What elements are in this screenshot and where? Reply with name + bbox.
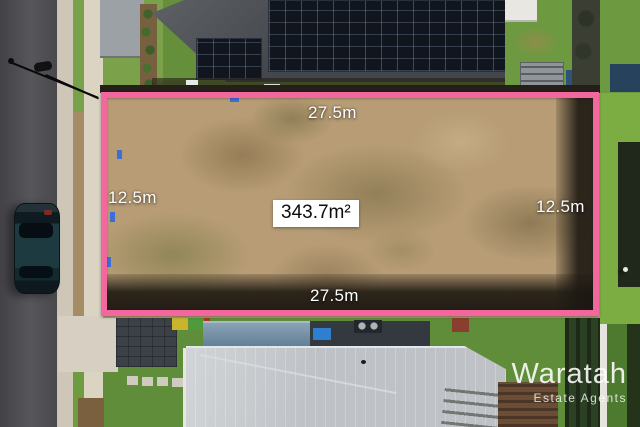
play-equipment-green xyxy=(189,317,203,330)
hedge-column-dark xyxy=(627,324,640,427)
play-equipment-yellow xyxy=(172,317,188,330)
verge-grass-top xyxy=(73,0,84,112)
watermark-tagline: Estate Agents xyxy=(533,391,627,405)
dimension-label-left: 12.5m xyxy=(108,188,157,208)
white-pergola xyxy=(505,0,537,22)
utility-pad xyxy=(100,0,144,58)
verge-dirt xyxy=(73,112,84,330)
garden-patch xyxy=(78,398,104,427)
stepping-stone xyxy=(127,376,138,385)
dimension-label-top: 27.5m xyxy=(308,103,357,123)
pool-shed xyxy=(203,321,310,349)
bird-on-roof xyxy=(361,360,366,364)
house-wall-edge xyxy=(183,348,186,427)
solar-panel-array-large xyxy=(268,0,510,72)
streetlight-pole xyxy=(8,58,14,64)
stepping-stone xyxy=(172,378,183,387)
car-taillight xyxy=(44,210,52,215)
car-windshield xyxy=(19,223,53,238)
stepping-stone xyxy=(157,377,168,386)
stepping-stone xyxy=(142,377,153,386)
dry-grass-patch xyxy=(512,26,560,58)
pergola-shadow xyxy=(441,385,502,427)
car-rear-window xyxy=(19,266,53,278)
watermark-brand: Waratah xyxy=(511,360,627,389)
paver-driveway xyxy=(116,315,177,367)
fence-trees xyxy=(572,0,600,93)
driveway-apron xyxy=(58,316,118,372)
solar-panel-array-small xyxy=(196,38,262,80)
ac-unit-bottom xyxy=(354,320,382,333)
dark-shade-structure xyxy=(618,142,640,287)
watermark-logo: Waratah Estate Agents xyxy=(511,360,627,405)
area-label: 343.7m² xyxy=(273,200,359,227)
dimension-label-right: 12.5m xyxy=(536,197,585,217)
dimension-label-bottom: 27.5m xyxy=(310,286,359,306)
blue-storage-box xyxy=(313,328,331,340)
neighbour-vehicle xyxy=(610,64,640,92)
person-on-lawn xyxy=(623,267,628,272)
aerial-photo: 27.5m 12.5m 12.5m 27.5m 343.7m² Waratah … xyxy=(0,0,640,427)
parked-car xyxy=(14,203,60,294)
